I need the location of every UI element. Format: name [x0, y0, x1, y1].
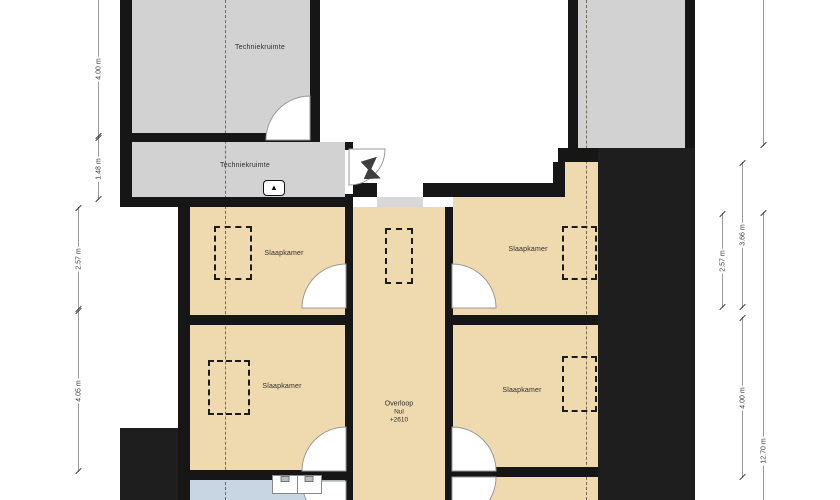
roof-window — [208, 360, 250, 415]
wall — [685, 0, 695, 150]
room-label-bedroom-bottom-right: Slaapkamer — [502, 387, 541, 395]
wall — [445, 467, 598, 477]
roof-slope-zone-bottom-left — [120, 428, 178, 500]
roof-window — [214, 226, 252, 280]
landing-opening-threshold — [377, 197, 423, 207]
room-techniek-top — [132, 0, 310, 133]
dim-tick — [739, 315, 745, 321]
roof-window — [385, 228, 413, 284]
floor-plan-page: { "plan": { "type": "floor-plan", "floor… — [0, 0, 840, 500]
room-label-landing: Overloop Nul +2610 — [385, 400, 413, 425]
landing-name: Overloop — [385, 400, 413, 409]
roof-window — [562, 356, 597, 412]
wall — [423, 183, 565, 197]
dim-tick — [75, 468, 81, 474]
dim-tick — [760, 142, 766, 148]
dimension-left-bottom: 4.05 m — [78, 310, 79, 472]
dimension-label: 4.05 m — [76, 378, 83, 403]
dimension-label: 4.00 m — [740, 385, 747, 410]
dim-tick — [95, 196, 101, 202]
wall — [345, 142, 353, 150]
wall — [353, 183, 377, 197]
double-sink — [272, 475, 322, 494]
dimension-label: 4.00 m — [96, 56, 103, 81]
sink-basin — [273, 476, 298, 493]
dimension-left-mid: 2.57 m — [78, 207, 79, 310]
dimension-label: 2.57 m — [76, 246, 83, 271]
dimension-right-inner: 2.57 m — [722, 213, 723, 308]
north-arrow-glyph: ▲ — [270, 184, 278, 192]
dim-tick — [75, 205, 81, 211]
room-gray-top-right — [578, 0, 685, 148]
faucet-icon — [305, 476, 314, 482]
dim-tick — [760, 210, 766, 216]
ventilation-unit-icon — [360, 157, 381, 182]
wall — [120, 0, 132, 207]
roof-window — [562, 226, 597, 280]
wall — [445, 315, 598, 325]
roof-slope-zone-right — [598, 148, 695, 500]
dim-tick — [739, 474, 745, 480]
room-label-bedroom-bottom-left: Slaapkamer — [262, 383, 301, 391]
dimension-right-outer-top — [763, 0, 764, 146]
dimension-label: 2.57 m — [720, 248, 727, 273]
wall — [132, 133, 310, 142]
wall-landing-right — [445, 207, 453, 500]
room-below-cut — [453, 477, 598, 500]
dimension-left-top: 4.00 m — [98, 0, 99, 137]
wall — [190, 315, 353, 325]
dimension-right-mid-top: 3.66 m — [742, 162, 743, 308]
wall-outer-left — [178, 207, 190, 500]
dim-tick — [739, 304, 745, 310]
dimension-label: 12.70 m — [761, 436, 768, 465]
north-arrow-badge: ▲ — [263, 180, 285, 196]
wall — [310, 0, 320, 142]
wall — [120, 197, 353, 207]
room-label-techniek-top: Techniekruimte — [235, 44, 285, 52]
dim-tick — [739, 160, 745, 166]
dimension-label: 1.48 m — [96, 156, 103, 181]
wall — [568, 0, 578, 148]
landing-level: +2610 — [385, 417, 413, 425]
dim-tick — [719, 304, 725, 310]
room-bedroom-top-right-ext — [565, 162, 598, 197]
dimension-right-outer: 12.70 m — [763, 212, 764, 500]
sink-basin — [298, 476, 322, 493]
dimension-left-top2: 1.48 m — [98, 137, 99, 200]
dimension-right-mid-bottom: 4.00 m — [742, 317, 743, 478]
faucet-icon — [280, 476, 289, 482]
dimension-label: 3.66 m — [740, 222, 747, 247]
room-label-bedroom-top-left: Slaapkamer — [264, 250, 303, 258]
room-label-techniek-bottom: Techniekruimte — [220, 162, 270, 170]
room-label-bedroom-top-right: Slaapkamer — [508, 246, 547, 254]
dim-tick — [719, 211, 725, 217]
landing-line2: Nul — [385, 409, 413, 417]
wall-landing-left — [345, 207, 353, 500]
